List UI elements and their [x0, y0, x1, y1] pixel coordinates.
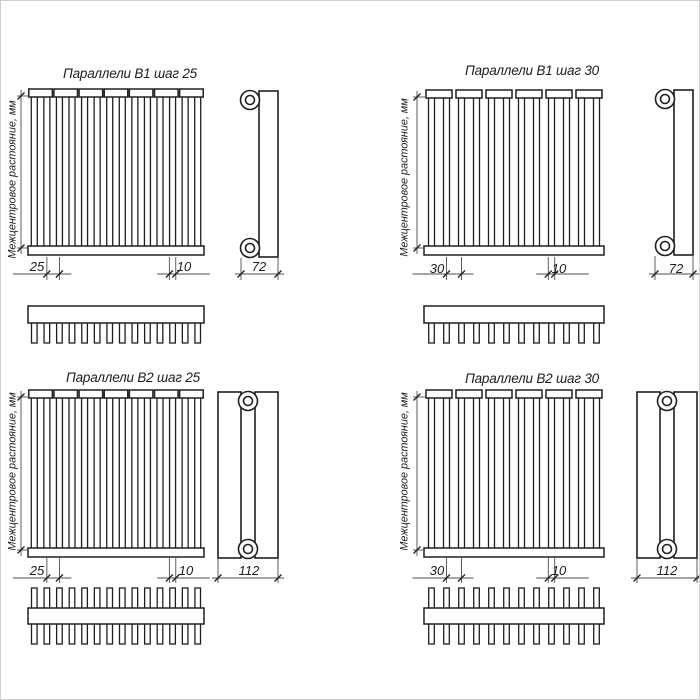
- dimension-tube-width-label: 10: [536, 261, 582, 276]
- drawing-canvas: Параллели В1 шаг 25 Межцентровое растоян…: [0, 0, 700, 700]
- panel-title-b1-step-25: Параллели В1 шаг 25: [35, 65, 225, 82]
- dimension-depth-label: 72: [236, 259, 282, 274]
- panel-b1-step-25: [13, 89, 284, 343]
- side-view: [656, 90, 694, 256]
- panel-b2-step-25: [13, 390, 284, 644]
- axis-label-intercenter-distance: Межцентровое растояние, мм: [6, 91, 19, 267]
- side-view: [218, 392, 278, 559]
- front-view: [424, 90, 604, 255]
- front-view: [28, 89, 204, 255]
- top-view: [28, 588, 204, 644]
- top-view: [424, 588, 604, 644]
- panel-title-b2-step-25: Параллели В2 шаг 25: [38, 369, 228, 386]
- dimension-step-label: 25: [14, 563, 60, 578]
- top-view: [424, 306, 604, 343]
- dimension-step-label: 30: [414, 563, 460, 578]
- panel-title-b1-step-30: Параллели В1 шаг 30: [437, 62, 627, 79]
- top-view: [28, 306, 204, 343]
- axis-label-intercenter-distance: Межцентровое растояние, мм: [398, 89, 411, 265]
- side-view: [637, 392, 697, 559]
- radiator-linework: [1, 1, 700, 700]
- dimension-tube-width-label: 10: [536, 563, 582, 578]
- dimension-tube-width-label: 10: [161, 259, 207, 274]
- dimension-depth-label: 72: [653, 261, 699, 276]
- dimension-depth-label: 112: [644, 563, 690, 578]
- front-view: [424, 390, 604, 557]
- panel-b2-step-30: [413, 390, 700, 644]
- dimension-tube-width-label: 10: [163, 563, 209, 578]
- panel-title-b2-step-30: Параллели В2 шаг 30: [437, 370, 627, 387]
- side-view: [241, 91, 279, 258]
- dimension-depth-label: 112: [226, 563, 272, 578]
- panel-b1-step-30: [413, 90, 700, 344]
- axis-label-intercenter-distance: Межцентровое растояние, мм: [6, 383, 19, 559]
- axis-label-intercenter-distance: Межцентровое растояние, мм: [398, 383, 411, 559]
- dimension-step-label: 25: [14, 259, 60, 274]
- front-view: [28, 390, 204, 557]
- dimension-step-label: 30: [414, 261, 460, 276]
